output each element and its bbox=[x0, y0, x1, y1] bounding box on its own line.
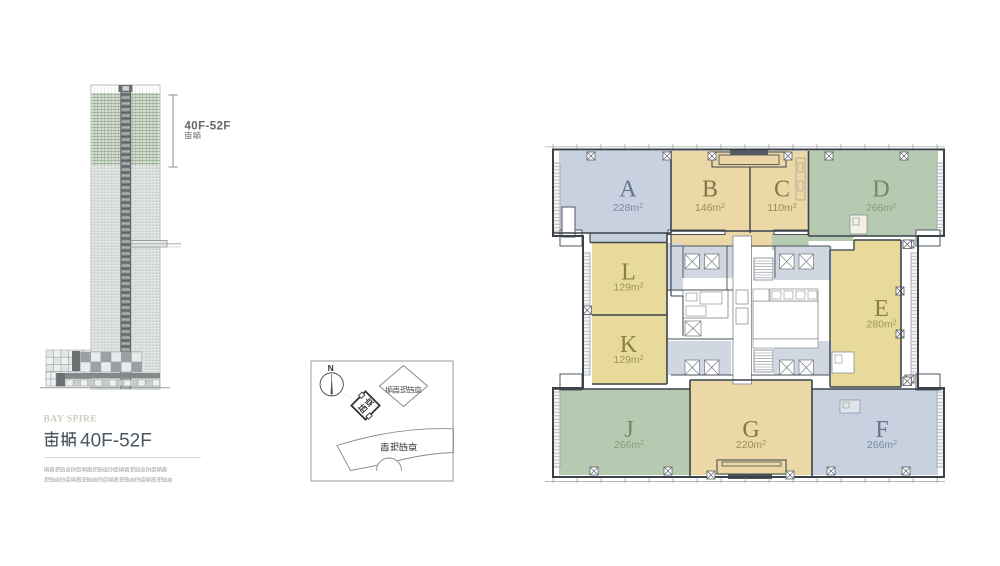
svg-text:A: A bbox=[619, 177, 637, 203]
svg-text:B: B bbox=[702, 177, 718, 203]
svg-text:146m2: 146m2 bbox=[695, 202, 725, 214]
svg-text:129m2: 129m2 bbox=[613, 282, 643, 294]
svg-text:266m2: 266m2 bbox=[867, 439, 897, 451]
svg-text:129m2: 129m2 bbox=[613, 354, 643, 366]
svg-text:280m2: 280m2 bbox=[866, 319, 896, 331]
svg-text:266m2: 266m2 bbox=[866, 202, 896, 214]
svg-text:110m2: 110m2 bbox=[767, 202, 797, 214]
svg-text:40F-52F: 40F-52F bbox=[80, 431, 152, 452]
svg-text:C: C bbox=[774, 177, 790, 203]
svg-text:220m2: 220m2 bbox=[736, 439, 766, 451]
svg-text:228m2: 228m2 bbox=[613, 202, 643, 214]
svg-text:40F-52F: 40F-52F bbox=[185, 121, 231, 133]
svg-text:BAY SPIRE: BAY SPIRE bbox=[44, 415, 98, 425]
svg-text:N: N bbox=[328, 363, 334, 373]
svg-text:266m2: 266m2 bbox=[614, 439, 644, 451]
svg-text:D: D bbox=[872, 177, 889, 203]
